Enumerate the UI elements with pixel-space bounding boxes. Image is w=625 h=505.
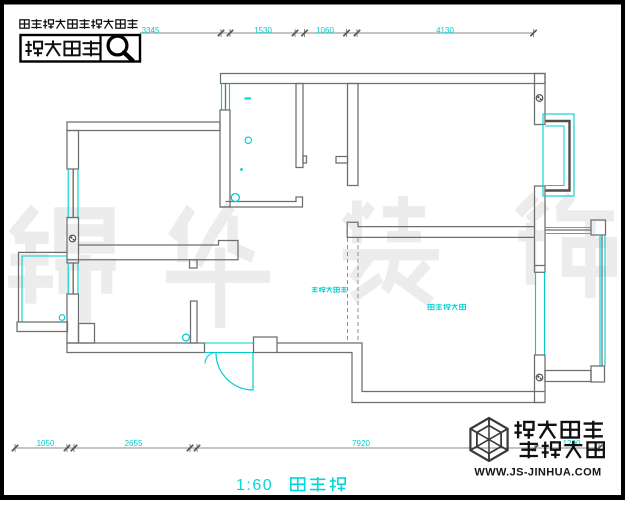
svg-text:7920: 7920 xyxy=(352,439,370,448)
svg-text:1530: 1530 xyxy=(254,26,272,35)
svg-text:3345: 3345 xyxy=(142,26,160,35)
svg-text:1:60: 1:60 xyxy=(236,477,273,494)
svg-text:2655: 2655 xyxy=(125,439,143,448)
svg-text:4130: 4130 xyxy=(436,26,454,35)
svg-text:1060: 1060 xyxy=(316,26,334,35)
svg-text:1050: 1050 xyxy=(37,439,55,448)
svg-text:WWW.JS-JINHUA.COM: WWW.JS-JINHUA.COM xyxy=(474,467,601,479)
